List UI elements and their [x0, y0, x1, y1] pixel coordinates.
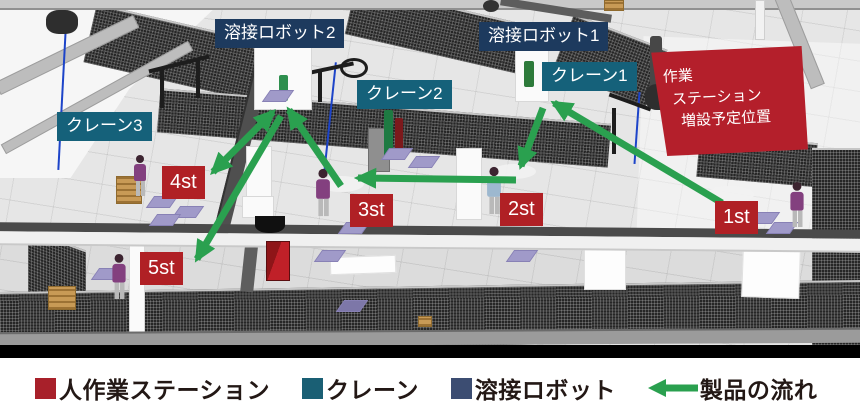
label-station-3: 3st: [350, 194, 393, 227]
planned-station-callout: 作業 ステーション 増設予定位置: [648, 46, 808, 156]
legend: 人作業ステーション クレーン 溶接ロボット 製品の流れ: [0, 358, 860, 418]
welding-robot-swatch-icon: [451, 378, 472, 399]
legend-label: 溶接ロボット: [475, 371, 616, 405]
label-welding-robot-2: 溶接ロボット2: [215, 19, 344, 48]
legend-label: クレーン: [326, 371, 419, 405]
label-crane-2: クレーン2: [357, 80, 452, 109]
label-crane-3: クレーン3: [57, 112, 152, 141]
flow-arrow-robot2-to-5st: [197, 116, 281, 259]
label-station-5: 5st: [140, 252, 183, 285]
flow-arrow-2st-to-3st: [358, 178, 516, 180]
legend-item-welding-robot: 溶接ロボット: [451, 371, 616, 405]
label-station-4: 4st: [162, 166, 205, 199]
factory-flow-figure: 溶接ロボット2 溶接ロボット1 クレーン1 クレーン2 クレーン3 4st 3s…: [0, 0, 860, 418]
legend-item-crane: クレーン: [302, 371, 419, 405]
legend-item-product-flow: 製品の流れ: [648, 371, 818, 405]
planned-station-text: 作業 ステーション 増設予定位置: [662, 61, 771, 134]
left-arrow-icon: [648, 378, 698, 398]
factory-3d-view: 溶接ロボット2 溶接ロボット1 クレーン1 クレーン2 クレーン3 4st 3s…: [0, 0, 860, 345]
label-station-2: 2st: [500, 193, 543, 226]
planned-station-line3: 増設予定位置: [665, 106, 772, 134]
scene-bottom-strip: [0, 345, 860, 358]
flow-arrow-crane1-to-2st: [521, 108, 543, 166]
human-station-swatch-icon: [35, 378, 56, 399]
legend-item-human-station: 人作業ステーション: [35, 371, 270, 405]
flow-arrow-3st-to-robot2: [289, 110, 341, 186]
legend-label: 人作業ステーション: [59, 371, 270, 405]
crane-swatch-icon: [302, 378, 323, 399]
label-welding-robot-1: 溶接ロボット1: [479, 22, 608, 51]
legend-label: 製品の流れ: [700, 371, 818, 405]
label-station-1: 1st: [715, 201, 758, 234]
label-crane-1: クレーン1: [542, 62, 637, 91]
